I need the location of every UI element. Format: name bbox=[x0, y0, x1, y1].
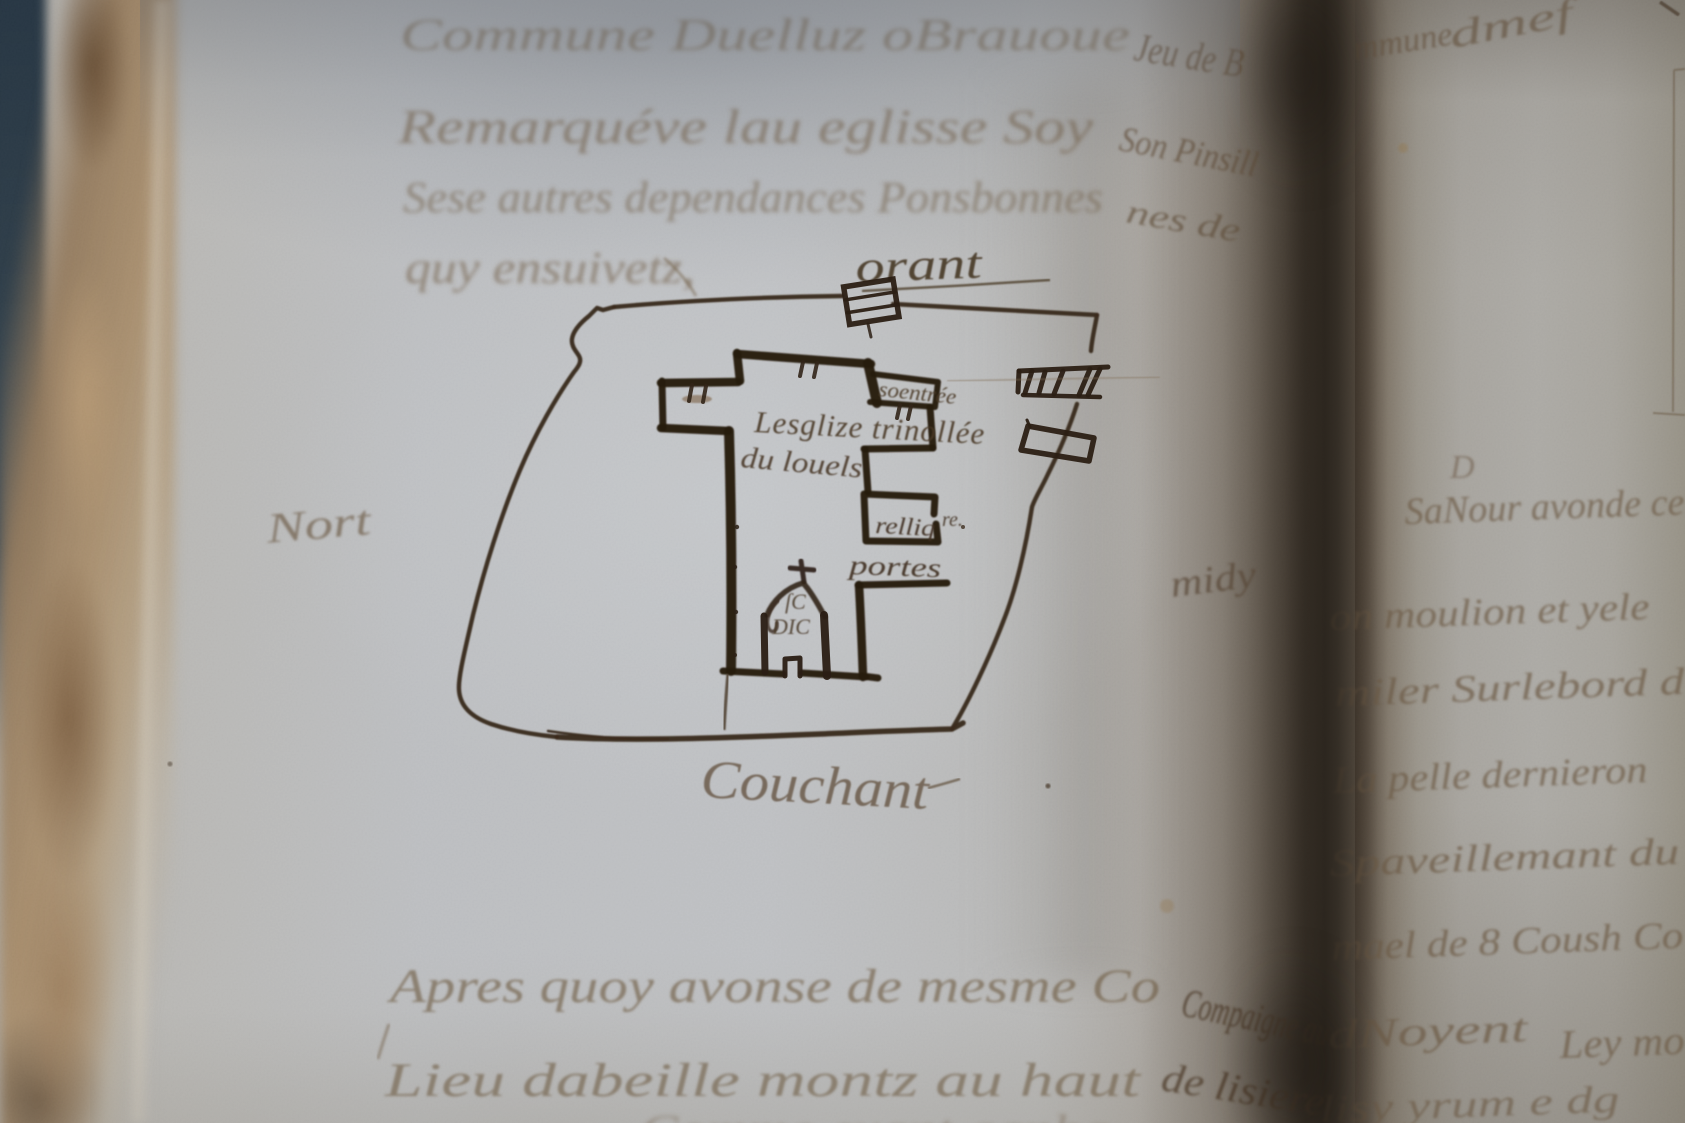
svg-text:re.: re. bbox=[942, 509, 963, 531]
svg-text:Ley mo: Ley mo bbox=[1558, 1018, 1685, 1067]
svg-text:Nort: Nort bbox=[264, 498, 375, 553]
svg-text:portes: portes bbox=[846, 550, 942, 583]
svg-text:Lieu dabeille montz au haut: Lieu dabeille montz au haut bbox=[384, 1054, 1143, 1107]
svg-text:Couchant: Couchant bbox=[699, 749, 932, 821]
svg-text:relliq: relliq bbox=[875, 513, 936, 542]
svg-text:Comme eyant ganba: Comme eyant ganba bbox=[640, 1106, 1110, 1123]
svg-text:Apres quoy avonse de mesme Co: Apres quoy avonse de mesme Co bbox=[386, 960, 1160, 1013]
svg-text:Commune Duelluz oBrauoue: Commune Duelluz oBrauoue bbox=[400, 9, 1130, 60]
svg-text:ſC: ſC bbox=[785, 589, 806, 614]
svg-text:DIC: DIC bbox=[771, 614, 810, 639]
svg-text:quy ensuivetz,: quy ensuivetz, bbox=[405, 242, 695, 293]
svg-text:Sese autres dependances Ponsbo: Sese autres dependances Ponsbonnes bbox=[403, 173, 1103, 222]
svg-text:Remarquéve lau eglisse Soy: Remarquéve lau eglisse Soy bbox=[397, 99, 1094, 154]
svg-text:D: D bbox=[1449, 449, 1475, 486]
svg-text:dNoyent: dNoyent bbox=[1327, 1005, 1530, 1057]
